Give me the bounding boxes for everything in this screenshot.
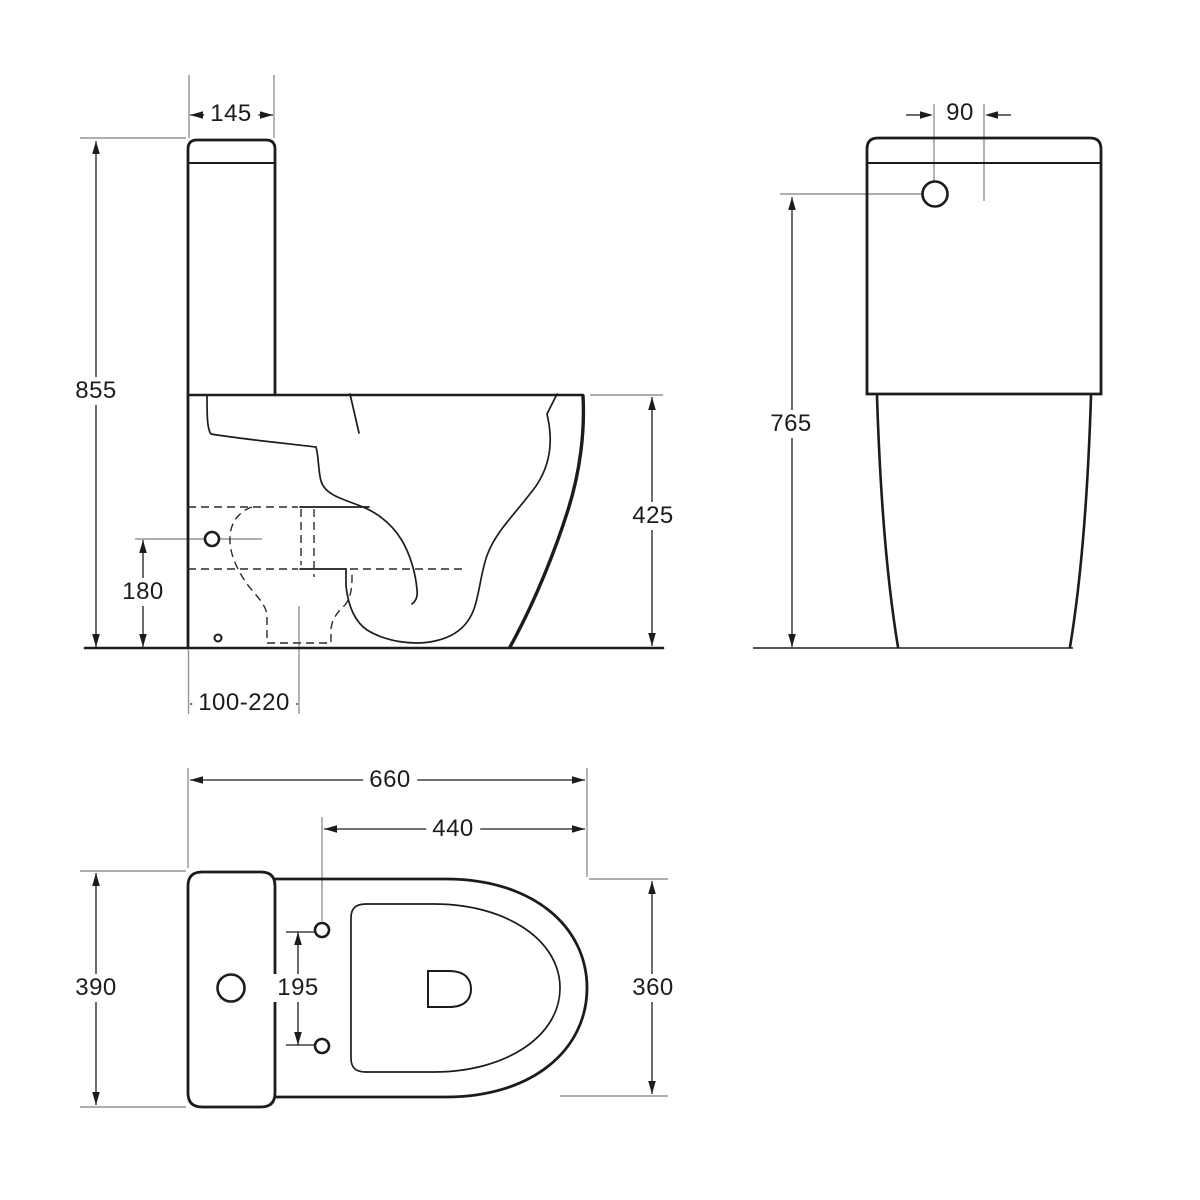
dim-label-outlet-height: 180 [116, 578, 170, 606]
outlet-center-mark [205, 532, 219, 546]
plan-hinge-hole-top [315, 923, 329, 937]
flush-button-circle [923, 182, 948, 207]
dim-label-outlet-range: 100-220 [192, 689, 296, 717]
dim-label-bowl-width: 360 [626, 974, 680, 1002]
side-view-arrowheads [92, 111, 656, 708]
dim-label-overall-depth: 660 [363, 766, 417, 794]
top-view [80, 768, 668, 1107]
top-view-arrowheads [92, 776, 656, 1105]
front-view [753, 104, 1101, 648]
dim-label-tank-depth: 145 [204, 100, 258, 128]
plan-inlet-hole [218, 975, 245, 1002]
dim-label-overall-width: 390 [69, 974, 123, 1002]
plan-flush-outlet-shape [428, 971, 471, 1007]
front-pedestal-left-curve [877, 396, 898, 647]
side-view [80, 75, 663, 714]
technical-drawing-page: 145 855 425 180 100-220 90 765 660 440 3… [0, 0, 1200, 1200]
front-view-arrowheads [788, 111, 998, 647]
plan-hinge-hole-bottom [315, 1039, 329, 1053]
toilet-dimension-drawing [0, 0, 1200, 1200]
dim-label-hinge-spacing: 195 [271, 974, 325, 1002]
dim-label-button-height: 765 [764, 410, 818, 438]
side-seat-and-weir-curve [207, 395, 417, 604]
side-inner-bowl-sump-curve [300, 394, 557, 643]
dim-label-bowl-depth: 440 [426, 815, 480, 843]
side-hinge-line [350, 394, 359, 433]
side-front-shell-curve [510, 396, 583, 647]
front-pedestal-right-curve [1070, 396, 1091, 647]
plan-seat-inner-ring [351, 904, 560, 1072]
trap-dashed-outline [230, 507, 352, 643]
side-tank-outline [188, 140, 275, 395]
dim-label-button-offset: 90 [940, 99, 980, 127]
dim-label-overall-height: 855 [69, 377, 123, 405]
dim-label-bowl-height: 425 [626, 502, 680, 530]
fixing-hole-mark [215, 635, 222, 642]
